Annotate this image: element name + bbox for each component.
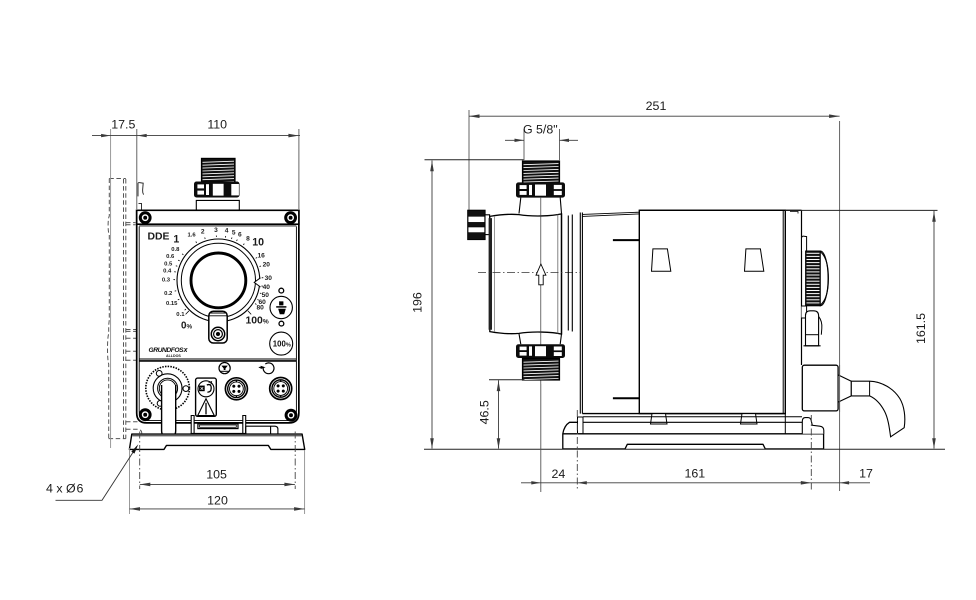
svg-text:16: 16: [258, 252, 266, 259]
svg-text:20: 20: [263, 262, 271, 269]
svg-text:30: 30: [265, 275, 273, 282]
svg-text:0.2: 0.2: [164, 291, 173, 297]
svg-text:251: 251: [646, 99, 667, 113]
svg-text:50: 50: [262, 292, 270, 299]
svg-text:G 5/8": G 5/8": [523, 123, 558, 137]
svg-text:196: 196: [410, 292, 424, 313]
svg-text:8: 8: [246, 236, 250, 243]
svg-text:24: 24: [552, 467, 566, 481]
svg-text:0.6: 0.6: [166, 254, 175, 260]
svg-text:161: 161: [684, 466, 705, 480]
svg-text:DDE: DDE: [148, 231, 170, 242]
svg-text:0.4: 0.4: [163, 268, 172, 274]
svg-text:0.5: 0.5: [164, 261, 173, 267]
svg-text:0.8: 0.8: [171, 247, 180, 253]
svg-text:1.6: 1.6: [187, 232, 196, 238]
svg-text:40: 40: [263, 284, 271, 291]
svg-text:3: 3: [214, 227, 218, 234]
svg-text:5: 5: [232, 229, 236, 236]
svg-text:ALLDOS: ALLDOS: [166, 354, 181, 358]
svg-text:1: 1: [173, 233, 179, 245]
svg-text:10: 10: [252, 237, 264, 249]
svg-text:161.5: 161.5: [914, 313, 928, 344]
svg-text:4 x: 4 x: [46, 482, 63, 496]
svg-text:4: 4: [225, 228, 229, 235]
svg-text:0.15: 0.15: [166, 301, 178, 307]
svg-text:120: 120: [207, 493, 228, 507]
svg-text:Ø: Ø: [66, 482, 76, 496]
svg-text:80: 80: [257, 304, 265, 311]
svg-text:17: 17: [859, 467, 873, 481]
svg-text:105: 105: [206, 467, 227, 481]
svg-text:2: 2: [201, 228, 205, 235]
svg-text:110: 110: [207, 118, 227, 132]
svg-text:6: 6: [77, 482, 84, 496]
svg-text:0.3: 0.3: [162, 278, 171, 284]
svg-text:6: 6: [238, 232, 242, 239]
svg-text:0.1: 0.1: [176, 312, 185, 318]
svg-text:17.5: 17.5: [111, 118, 135, 132]
svg-text:46.5: 46.5: [478, 400, 492, 424]
